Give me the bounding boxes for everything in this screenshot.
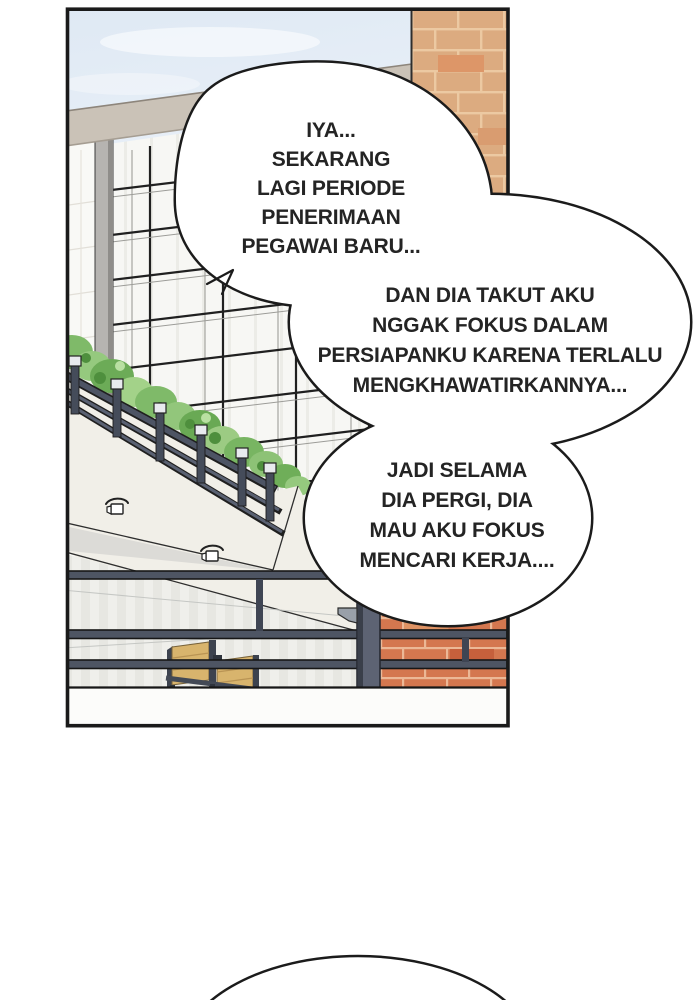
speech-bubble-1-text: IYA... SEKARANG LAGI PERIODE PENERIMAAN … (181, 116, 481, 261)
bottom-speech-bubble (179, 956, 537, 1000)
guardrail-middle (62, 630, 507, 639)
cloud (100, 27, 320, 57)
ledge (69, 687, 507, 725)
guardrail-post (256, 579, 263, 631)
speech-bubble-3-text: JADI SELAMA DIA PERGI, DIA MAU AKU FOKUS… (297, 456, 617, 576)
speech-bubble-2-text: DAN DIA TAKUT AKU NGGAK FOKUS DALAM PERS… (277, 281, 700, 401)
guardrail-lower (62, 660, 507, 669)
guardrail-post (462, 638, 469, 662)
comic-page: IYA... SEKARANG LAGI PERIODE PENERIMAAN … (0, 0, 700, 1000)
cloud (60, 73, 200, 95)
guardrail-upper (62, 571, 332, 579)
